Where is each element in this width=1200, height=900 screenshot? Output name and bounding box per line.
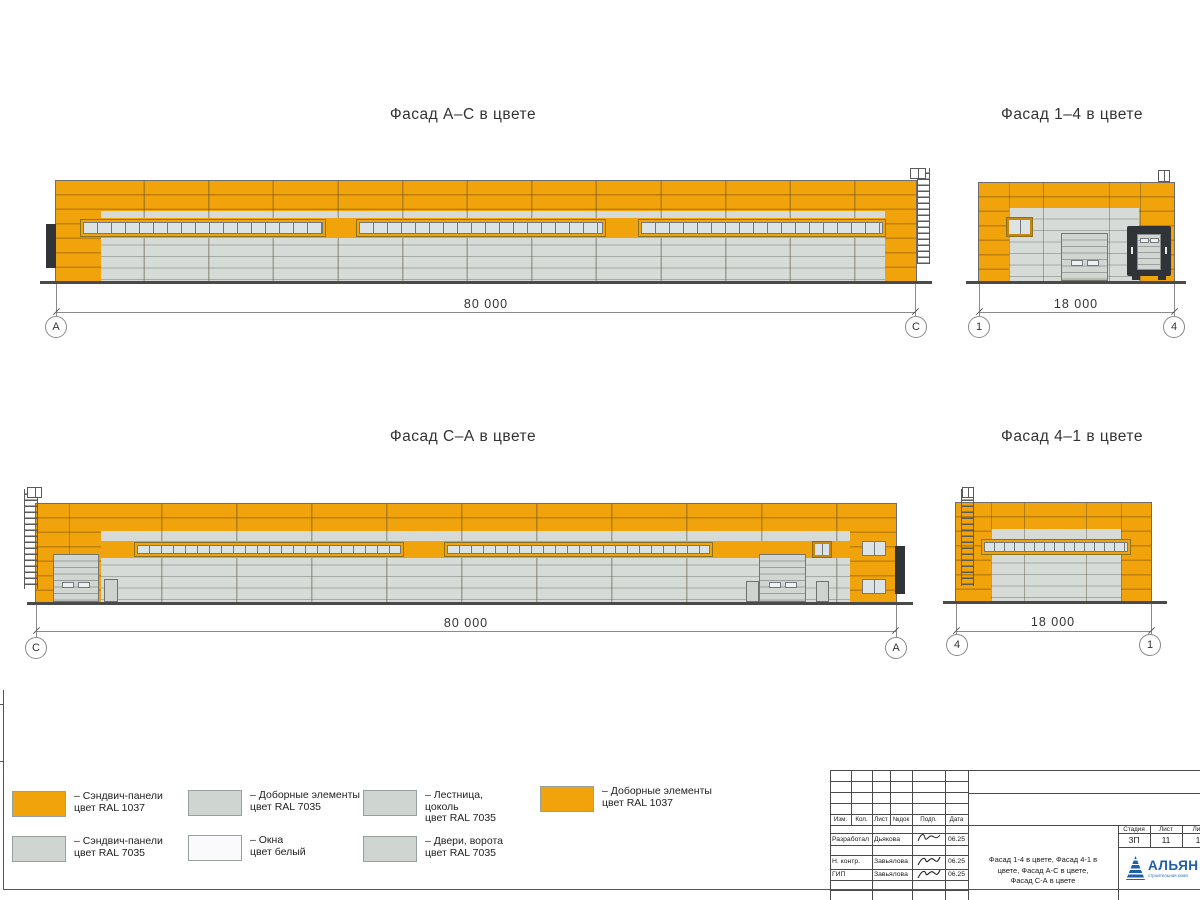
dock-door [1137, 234, 1161, 270]
facade-ac-ground-line [40, 281, 932, 284]
stamp-sheet-value: 11 [1150, 835, 1182, 845]
facade-ca-ladder-top [27, 487, 42, 498]
facade-ca-ext-line-right [896, 605, 897, 637]
facade-ca-dim-label: 80 000 [444, 616, 488, 630]
legend-swatch-gray [363, 836, 417, 862]
dock-slot [1165, 247, 1167, 254]
stamp-name-developer: Дьякова [874, 836, 900, 843]
gate-window [78, 582, 90, 588]
legend-label: – Двери, ворота цвет RAL 7035 [425, 836, 503, 859]
legend-item: – Доборные элементы цвет RAL 1037 [540, 786, 712, 812]
stamp-col-podp: Подп. [912, 816, 945, 823]
facade-41-title: Фасад 4–1 в цвете [1001, 428, 1143, 446]
facade-ac-ladder-top [910, 168, 926, 179]
gate-window [1071, 260, 1083, 266]
stamp-sheets-label: Лис [1182, 826, 1200, 833]
facade-41-ladder-top [962, 487, 974, 498]
legend-swatch-gray [12, 836, 66, 862]
drawing-sheet: { "colors": { "orange": "#F0A30B", "oran… [0, 0, 1200, 900]
facade-ca-ext-line-left [36, 605, 37, 637]
facade-ca-door-2 [746, 581, 759, 602]
facade-14-window [1007, 218, 1032, 236]
facade-ac-drawing [55, 180, 917, 282]
facade-ca-right-window-lower [862, 579, 886, 594]
frame-left-line [3, 690, 4, 889]
facade-14-dim-line [979, 312, 1174, 313]
facade-ac-ribbon-window-1 [80, 219, 326, 237]
legend-label: – Окна цвет белый [250, 835, 306, 858]
facade-14-dock-shelter [1127, 226, 1171, 276]
facade-ca-door-3 [816, 581, 829, 602]
gate-window [769, 582, 781, 588]
facade-ca-drawing [35, 503, 897, 603]
stamp-role-gip: ГИП [832, 871, 845, 878]
facade-ca-ground-line [27, 602, 913, 605]
dock-bumper [1158, 276, 1166, 280]
legend-item: – Окна цвет белый [188, 835, 306, 861]
dock-slot [1131, 247, 1133, 254]
facade-ac-dim-label: 80 000 [464, 297, 508, 311]
facade-41-drawing [955, 502, 1152, 602]
legend-swatch-gray [188, 790, 242, 816]
stamp-date-developer: 06.25 [945, 836, 968, 843]
facade-ac-title: Фасад А–С в цвете [390, 106, 536, 124]
stamp-sheet-label: Лист [1150, 826, 1182, 833]
facade-ca-band-window [813, 542, 831, 557]
facade-41-ground-line [943, 601, 1167, 604]
facade-14-title: Фасад 1–4 в цвете [1001, 106, 1143, 124]
gate-window [785, 582, 797, 588]
stamp-name-ncontrol: Завьялова [874, 858, 908, 865]
panel-joint [1109, 183, 1110, 281]
stamp-date-ncontrol: 06.25 [945, 858, 968, 865]
axis-marker-a: А [45, 316, 67, 338]
gate-window [1087, 260, 1099, 266]
signature-scribble [916, 832, 942, 844]
stamp-role-ncontrol: Н. контр. [832, 858, 860, 865]
facade-14-ladder-top [1158, 170, 1170, 182]
facade-ac-dim-line [56, 312, 916, 313]
frame-tick [0, 704, 3, 705]
facade-ac-roof-ladder [917, 168, 930, 264]
facade-ca-right-window-upper [862, 541, 886, 556]
legend-item: – Сэндвич-панели цвет RAL 7035 [12, 836, 163, 862]
legend-label: – Доборные элементы цвет RAL 1037 [602, 786, 712, 809]
gate-window [62, 582, 74, 588]
stamp-stage-value: ЗП [1118, 835, 1150, 845]
facade-ca-side-dock-shelter [895, 546, 905, 594]
facade-41-dim-line [956, 631, 1151, 632]
stamp-sheets-value: 1 [1182, 835, 1200, 845]
alliance-logo-text: АЛЬЯН [1148, 858, 1199, 873]
axis-marker-4: 4 [1163, 316, 1185, 338]
stamp-stage-label: Стадия [1118, 826, 1150, 833]
facade-ca-title: Фасад С–А в цвете [390, 428, 536, 446]
stamp-col-data: Дата [945, 816, 968, 823]
legend-swatch-orange [12, 791, 66, 817]
legend-swatch-gray [363, 790, 417, 816]
axis-marker-c: С [905, 316, 927, 338]
facade-ca-sectional-gate-left [53, 554, 99, 602]
facade-ac-ribbon-window-2 [356, 219, 606, 237]
facade-ac-side-dock-shelter [46, 224, 56, 268]
legend-label: – Сэндвич-панели цвет RAL 1037 [74, 791, 163, 814]
facade-41-dim-label: 18 000 [1031, 615, 1075, 629]
stamp-col-izm: Изм. [830, 816, 851, 823]
facade-ca-ribbon-window-2 [444, 542, 713, 557]
facade-ca-ribbon-window-1 [134, 542, 404, 557]
facade-ca-door-1 [104, 579, 118, 602]
dock-door-window [1150, 238, 1159, 243]
facade-41-ribbon-window [981, 539, 1131, 555]
title-block: Изм. Кол. Лист №док Подп. Дата Разработа… [830, 770, 1200, 900]
axis-marker-a2: А [885, 637, 907, 659]
legend-item: – Лестница, цоколь цвет RAL 7035 [363, 790, 496, 825]
facade-14-ground-line [966, 281, 1186, 284]
stamp-date-gip: 06.25 [945, 871, 968, 878]
facade-14-sectional-gate [1061, 233, 1108, 281]
axis-marker-4b: 4 [946, 634, 968, 656]
dock-door-window [1140, 238, 1149, 243]
alliance-logo-subtitle: строительная комп [1148, 873, 1188, 878]
facade-ca-sectional-gate-center [759, 554, 806, 602]
legend-item: – Двери, ворота цвет RAL 7035 [363, 836, 503, 862]
facade-ca-dim-line [36, 631, 896, 632]
stamp-col-ndok: №док [890, 816, 912, 823]
facade-14-dim-label: 18 000 [1054, 297, 1098, 311]
facade-ac-right-column [885, 181, 916, 281]
axis-marker-1: 1 [968, 316, 990, 338]
facade-ca-roof-ladder [24, 489, 38, 589]
signature-scribble [916, 868, 942, 880]
facade-ac-ribbon-window-3 [638, 219, 886, 237]
axis-marker-c2: С [25, 637, 47, 659]
legend-label: – Сэндвич-панели цвет RAL 7035 [74, 836, 163, 859]
legend-label: – Лестница, цоколь цвет RAL 7035 [425, 790, 496, 825]
stamp-doc-title: Фасад 1-4 в цвете, Фасад 4-1 в цвете, Фа… [971, 855, 1115, 887]
alliance-logo-icon [1126, 856, 1145, 880]
stamp-name-gip: Завьялова [874, 871, 908, 878]
dock-bumper [1132, 276, 1140, 280]
stamp-col-kol: Кол. [851, 816, 872, 823]
legend-item: – Доборные элементы цвет RAL 7035 [188, 790, 360, 816]
panel-joint [1043, 183, 1044, 281]
stamp-col-list: Лист [872, 816, 890, 823]
facade-41-roof-ladder [961, 489, 974, 586]
axis-marker-1b: 1 [1139, 634, 1161, 656]
legend-swatch-orange [540, 786, 594, 812]
legend-item: – Сэндвич-панели цвет RAL 1037 [12, 791, 163, 817]
frame-tick [0, 761, 3, 762]
stamp-role-developer: Разработал [832, 836, 869, 843]
signature-scribble [916, 855, 942, 867]
facade-14-drawing [978, 182, 1175, 282]
legend-label: – Доборные элементы цвет RAL 7035 [250, 790, 360, 813]
legend-swatch-white [188, 835, 242, 861]
